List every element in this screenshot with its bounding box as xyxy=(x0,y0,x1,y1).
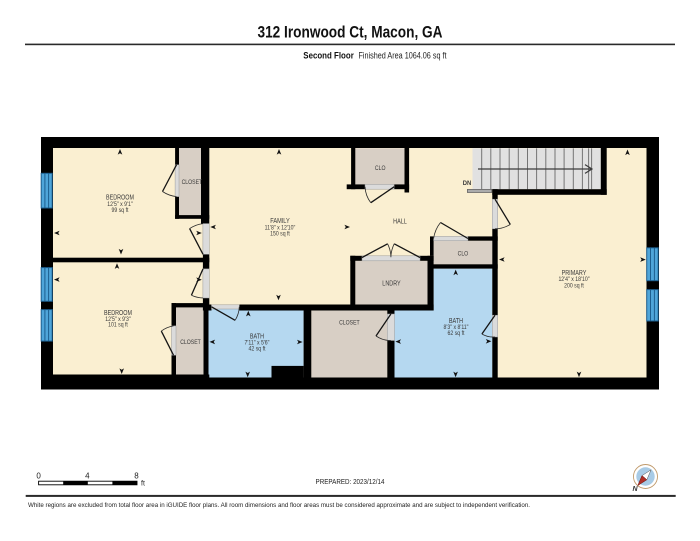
svg-text:0: 0 xyxy=(36,471,41,480)
svg-text:CLOSET: CLOSET xyxy=(339,319,360,326)
svg-text:CLOSET: CLOSET xyxy=(182,179,203,186)
svg-text:ft: ft xyxy=(141,480,145,487)
svg-text:PREPARED: 2023/12/14: PREPARED: 2023/12/14 xyxy=(316,479,385,486)
svg-text:Second Floor: Second Floor xyxy=(303,50,354,60)
svg-text:Finished Area 1064.06 sq ft: Finished Area 1064.06 sq ft xyxy=(359,50,447,60)
svg-text:LNDRY: LNDRY xyxy=(382,280,401,287)
svg-text:CLOSET: CLOSET xyxy=(180,339,201,346)
svg-text:312 Ironwood Ct, Macon, GA: 312 Ironwood Ct, Macon, GA xyxy=(258,23,443,41)
svg-text:4: 4 xyxy=(85,471,90,480)
svg-text:99 sq ft: 99 sq ft xyxy=(112,207,129,214)
svg-text:White regions are excluded fro: White regions are excluded from total fl… xyxy=(28,502,530,509)
svg-text:HALL: HALL xyxy=(393,218,407,225)
svg-text:CLO: CLO xyxy=(375,165,386,172)
svg-text:8: 8 xyxy=(134,471,139,480)
svg-text:150 sq ft: 150 sq ft xyxy=(270,231,290,238)
svg-text:101 sq ft: 101 sq ft xyxy=(108,321,128,328)
svg-text:DN: DN xyxy=(463,180,472,187)
svg-text:42 sq ft: 42 sq ft xyxy=(249,346,266,353)
svg-text:CLO: CLO xyxy=(458,251,469,258)
svg-text:62 sq ft: 62 sq ft xyxy=(448,330,465,337)
svg-text:200 sq ft: 200 sq ft xyxy=(564,283,584,290)
